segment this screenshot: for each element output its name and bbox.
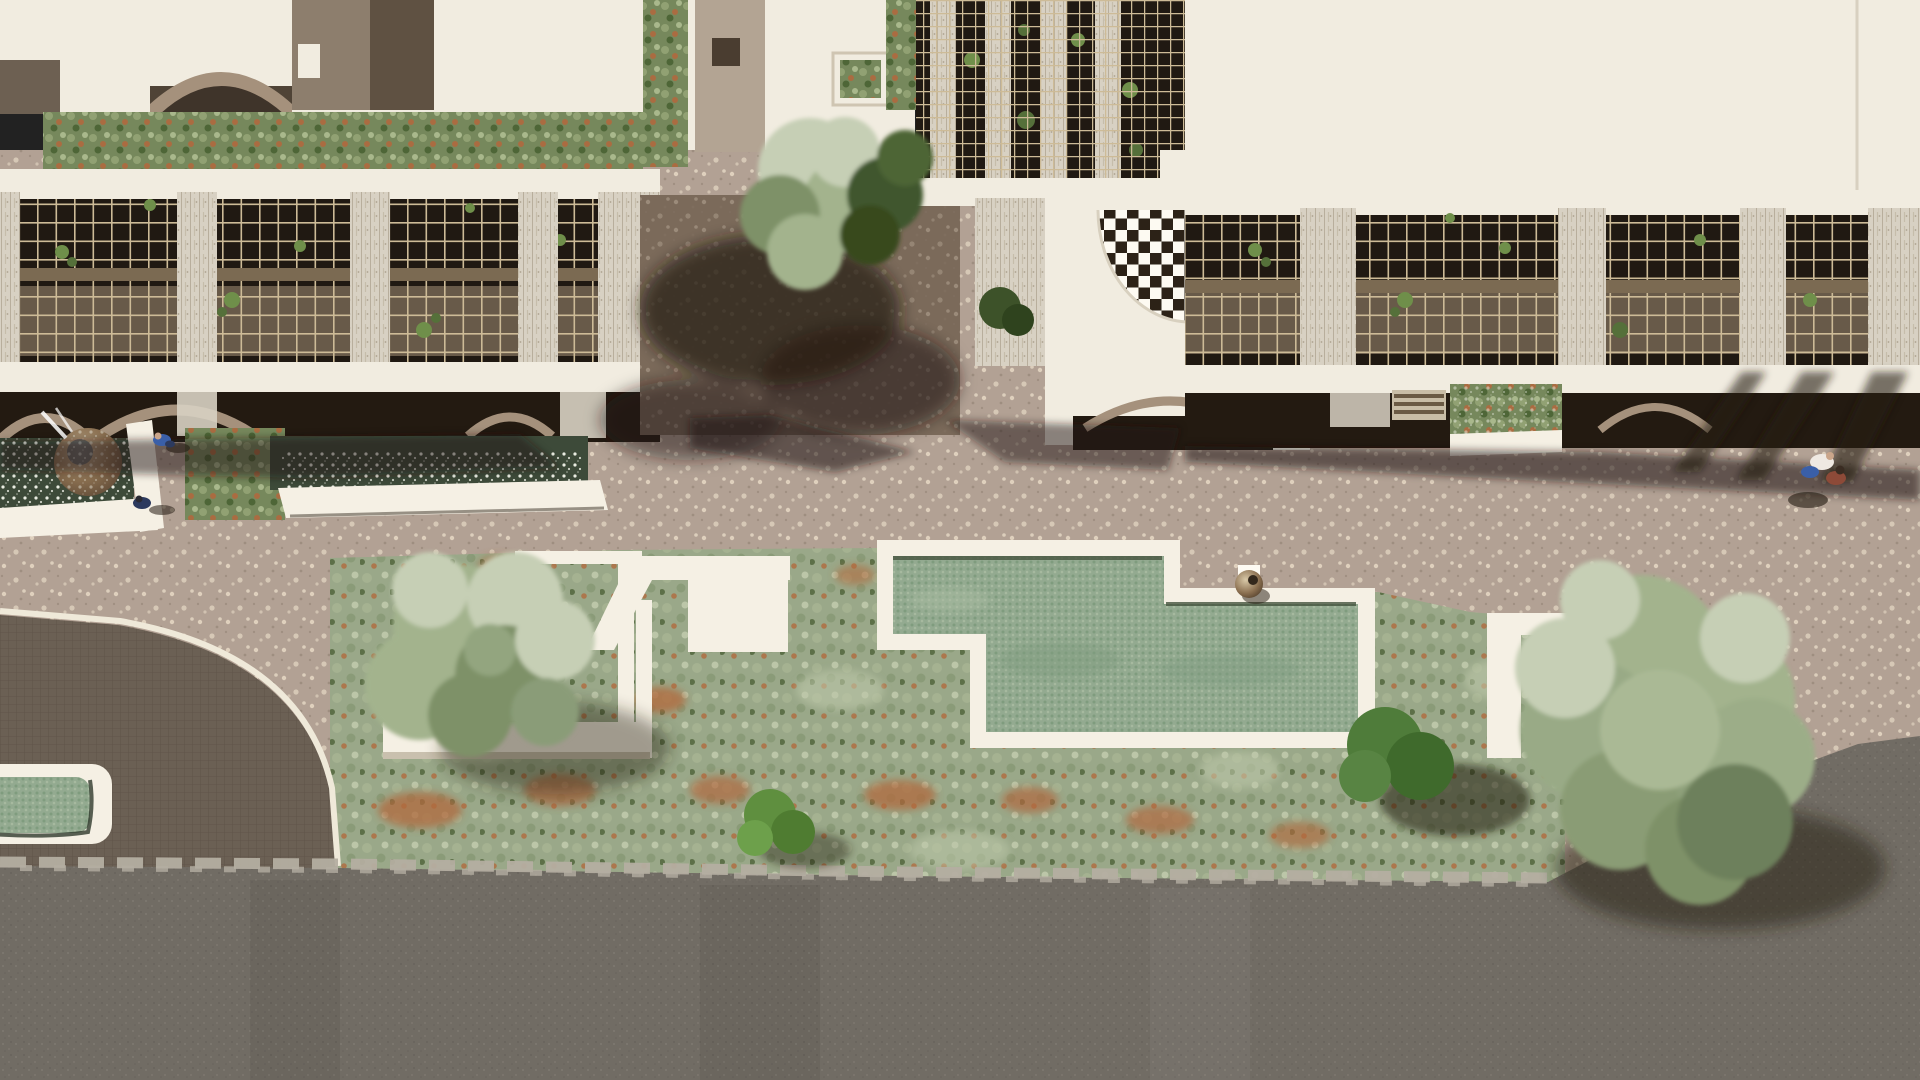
planter-ledge: [0, 169, 660, 199]
rooftop-pergola: [916, 0, 1162, 178]
tan-wall: [695, 0, 765, 152]
roof-recess: [0, 60, 60, 114]
roof-planter-L-horizontal: [560, 112, 688, 167]
roof-planter-strip: [43, 112, 643, 169]
trellis-band-left: [0, 192, 660, 370]
aerial-render: [0, 0, 1920, 1080]
small-pool: [0, 764, 112, 844]
trellis-band-right: [1185, 208, 1920, 372]
roof-window: [298, 44, 320, 78]
roof-planter-strip-v: [886, 0, 916, 110]
steps: [1392, 390, 1446, 420]
walkway-band-left: [0, 362, 660, 392]
scene-canvas: [0, 0, 1920, 1080]
roof-planter-L-vertical: [643, 0, 688, 112]
trellis-rail: [0, 268, 660, 281]
roof-terrace: [292, 0, 434, 110]
